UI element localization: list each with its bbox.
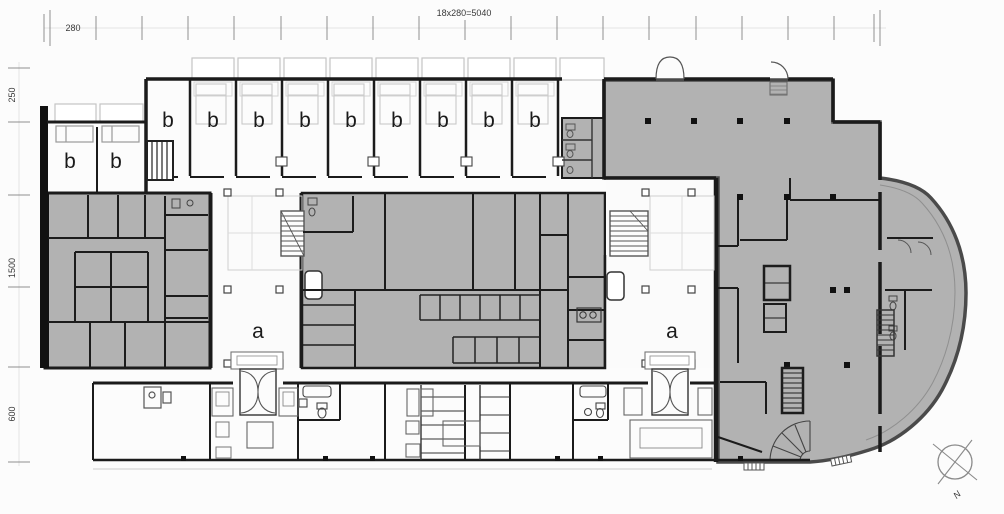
floor-plan-canvas: 280 18x280=5040 250 1500 600: [0, 0, 1004, 514]
floor-plan-page: 280 18x280=5040 250 1500 600: [0, 0, 1004, 514]
bathroom-east-fixtures: [580, 386, 606, 418]
dimension-module-label: 280: [65, 23, 80, 33]
balconies: [55, 58, 604, 122]
bathroom-west-fixtures: [299, 386, 331, 418]
gray-zones: [45, 80, 966, 462]
service-strip: [562, 118, 604, 178]
room-label-b: b: [391, 109, 403, 132]
room-label-b: b: [299, 109, 311, 132]
meeting-room-furniture: [406, 389, 480, 457]
room-label-b: b: [253, 109, 265, 132]
compass-rose: N: [933, 440, 977, 501]
room-label-b: b: [529, 109, 541, 132]
room-label-b: b: [345, 109, 357, 132]
dimension-left-600: 600: [7, 406, 17, 421]
double-door-arcs: [656, 57, 684, 79]
dimension-left-1500: 1500: [7, 258, 17, 278]
north-label: N: [951, 489, 963, 501]
dimension-total-label: 18x280=5040: [437, 8, 492, 18]
room-label-b: b: [437, 109, 449, 132]
single-door-arc: [771, 62, 788, 79]
left-office-block: [45, 193, 210, 368]
room-label-a: a: [666, 320, 678, 343]
stair-west-end: [147, 141, 173, 180]
top-dimension-line: 280 18x280=5040: [44, 8, 886, 46]
elevator-east: [607, 272, 624, 300]
stair-atrium-east: [610, 211, 648, 256]
stair-atrium-west: [281, 211, 304, 256]
room-label-b: b: [162, 109, 174, 132]
room-label-b: b: [110, 150, 122, 173]
left-dimension-line: 250 1500 600: [7, 62, 30, 466]
room-label-b: b: [483, 109, 495, 132]
bed-outlines: [196, 84, 548, 124]
dimension-left-250: 250: [7, 87, 17, 102]
office-desk-west: [144, 387, 171, 408]
elevator-west: [305, 271, 322, 299]
room-label-b: b: [64, 150, 76, 173]
room-label-b: b: [207, 109, 219, 132]
room-label-a: a: [252, 320, 264, 343]
